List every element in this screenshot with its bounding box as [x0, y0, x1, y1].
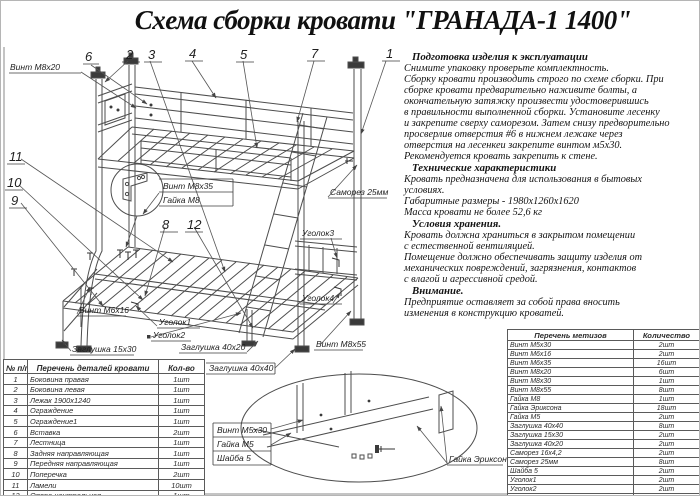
table-row: Винт М8х301шт	[508, 377, 700, 386]
label-vint-m8x20: Винт М8х20	[10, 62, 60, 72]
heading-specs: Технические характеристики	[412, 162, 696, 174]
text-specs: Кровать предназначена для использования …	[404, 174, 696, 218]
table-row: Винт М6х3516шт	[508, 359, 700, 368]
label-vint-m8x35: Винт М8х35	[163, 181, 213, 191]
col-part-name: Перечень деталей кровати	[28, 360, 159, 374]
table-row: 10Поперечка2шт	[4, 469, 205, 480]
heading-preparation: Подготовка изделия к эксплуатации	[412, 51, 696, 63]
callout-7: 7	[311, 46, 319, 61]
table-row: Уголок12шт	[508, 476, 700, 485]
table-row: Заглушка 15х302шт	[508, 431, 700, 440]
heading-attention: Внимание.	[412, 285, 696, 297]
table-row: 7Лестница1шт	[4, 437, 205, 448]
instructions-block: Подготовка изделия к эксплуатации Снимит…	[404, 51, 696, 319]
table-row: Заглушка 40х408шт	[508, 422, 700, 431]
callout-1: 1	[386, 46, 393, 61]
table-row: Гайка М52шт	[508, 413, 700, 422]
table-row: Гайка М81шт	[508, 395, 700, 404]
hardware-table: Перечень метизов Количество Винт М5х302ш…	[507, 329, 699, 495]
col-hardware-qty: Количество	[634, 330, 700, 341]
label-samorez-25mm: Саморез 25мм	[330, 187, 388, 197]
label-vint-m8x55: Винт М8х55	[316, 339, 366, 349]
callout-6: 6	[85, 49, 93, 64]
table-row: 1Боковина правая1шт	[4, 374, 205, 385]
label-vint-m6x16: Винт М6х16	[79, 305, 129, 315]
table-row: Заглушка 40х202шт	[508, 440, 700, 449]
table-row: Гайка Эриксона18шт	[508, 404, 700, 413]
label-gaika-m8: Гайка М8	[163, 195, 200, 205]
table-row: 2Боковина левая1шт	[4, 384, 205, 395]
callout-12: 12	[187, 217, 202, 232]
text-preparation: Снимите упаковку проверьте комплектность…	[404, 63, 696, 162]
callout-10: 10	[7, 175, 22, 190]
parts-table: № п/п Перечень деталей кровати Кол-во 1Б…	[3, 359, 204, 495]
label-shaiba-5: Шайба 5	[217, 453, 251, 463]
detail-ellipse-underside	[241, 371, 477, 482]
label-ugolok2: Уголок2	[152, 330, 185, 340]
callout-9: 9	[11, 193, 18, 208]
label-zaglushka-40x20: Заглушка 40х20	[181, 342, 246, 352]
label-ugolok4: Уголок4	[301, 293, 334, 303]
label-ugolok3: Уголок3	[301, 228, 334, 238]
label-zaglushka-40x40: Заглушка 40х40	[209, 363, 274, 373]
label-zaglushka-15x30: Заглушка 15х30	[72, 344, 137, 354]
table-row: Саморез 25мм8шт	[508, 458, 700, 467]
callout-11: 11	[9, 149, 23, 164]
callout-3: 3	[148, 47, 156, 62]
label-vint-m5x30: Винт М5х30	[217, 425, 267, 435]
col-hardware-name: Перечень метизов	[508, 330, 634, 341]
table-row: 12Опора центральная1шт	[4, 490, 205, 496]
label-gaika-eriksona: Гайка Эриксона	[449, 454, 512, 464]
col-num: № п/п	[4, 360, 28, 374]
table-row: 6Вставка2шт	[4, 426, 205, 437]
table-row: Винт М5х302шт	[508, 341, 700, 350]
detail-circle-bracket	[111, 164, 163, 247]
callout-2: 2	[125, 47, 134, 62]
table-row: Винт М8х206шт	[508, 368, 700, 377]
text-storage: Кровать должна храниться в закрытом поме…	[404, 230, 696, 285]
table-row: Винт М6х162шт	[508, 350, 700, 359]
assembly-sheet: Схема сборки кровати "ГРАНАДА-1 1400"	[0, 0, 700, 496]
table-row: 11Ламели10шт	[4, 479, 205, 490]
label-ugolok1: Уголок1	[158, 317, 191, 327]
callout-5: 5	[240, 47, 248, 62]
callout-4: 4	[189, 46, 196, 61]
heading-storage: Условия хранения.	[412, 218, 696, 230]
table-row: 9Передняя направляющая1шт	[4, 458, 205, 469]
table-row: 4Ограждение1шт	[4, 405, 205, 416]
hardware-table-header: Перечень метизов Количество	[508, 330, 700, 341]
table-row: Саморез 16х4,22шт	[508, 449, 700, 458]
table-row: Винт М8х558шт	[508, 386, 700, 395]
callout-8: 8	[162, 217, 170, 232]
table-row: 8Задняя направляющая1шт	[4, 448, 205, 459]
col-qty: Кол-во	[159, 360, 205, 374]
table-row: 5Ограждение11шт	[4, 416, 205, 427]
table-row: 3Лежак 1900х12401шт	[4, 395, 205, 406]
table-row: Шайба 52шт	[508, 467, 700, 476]
label-gaika-m5: Гайка М5	[217, 439, 254, 449]
text-attention: Предприятие оставляет за собой права вно…	[404, 297, 696, 319]
table-row: Уголок22шт	[508, 485, 700, 494]
parts-table-header: № п/п Перечень деталей кровати Кол-во	[4, 360, 205, 374]
